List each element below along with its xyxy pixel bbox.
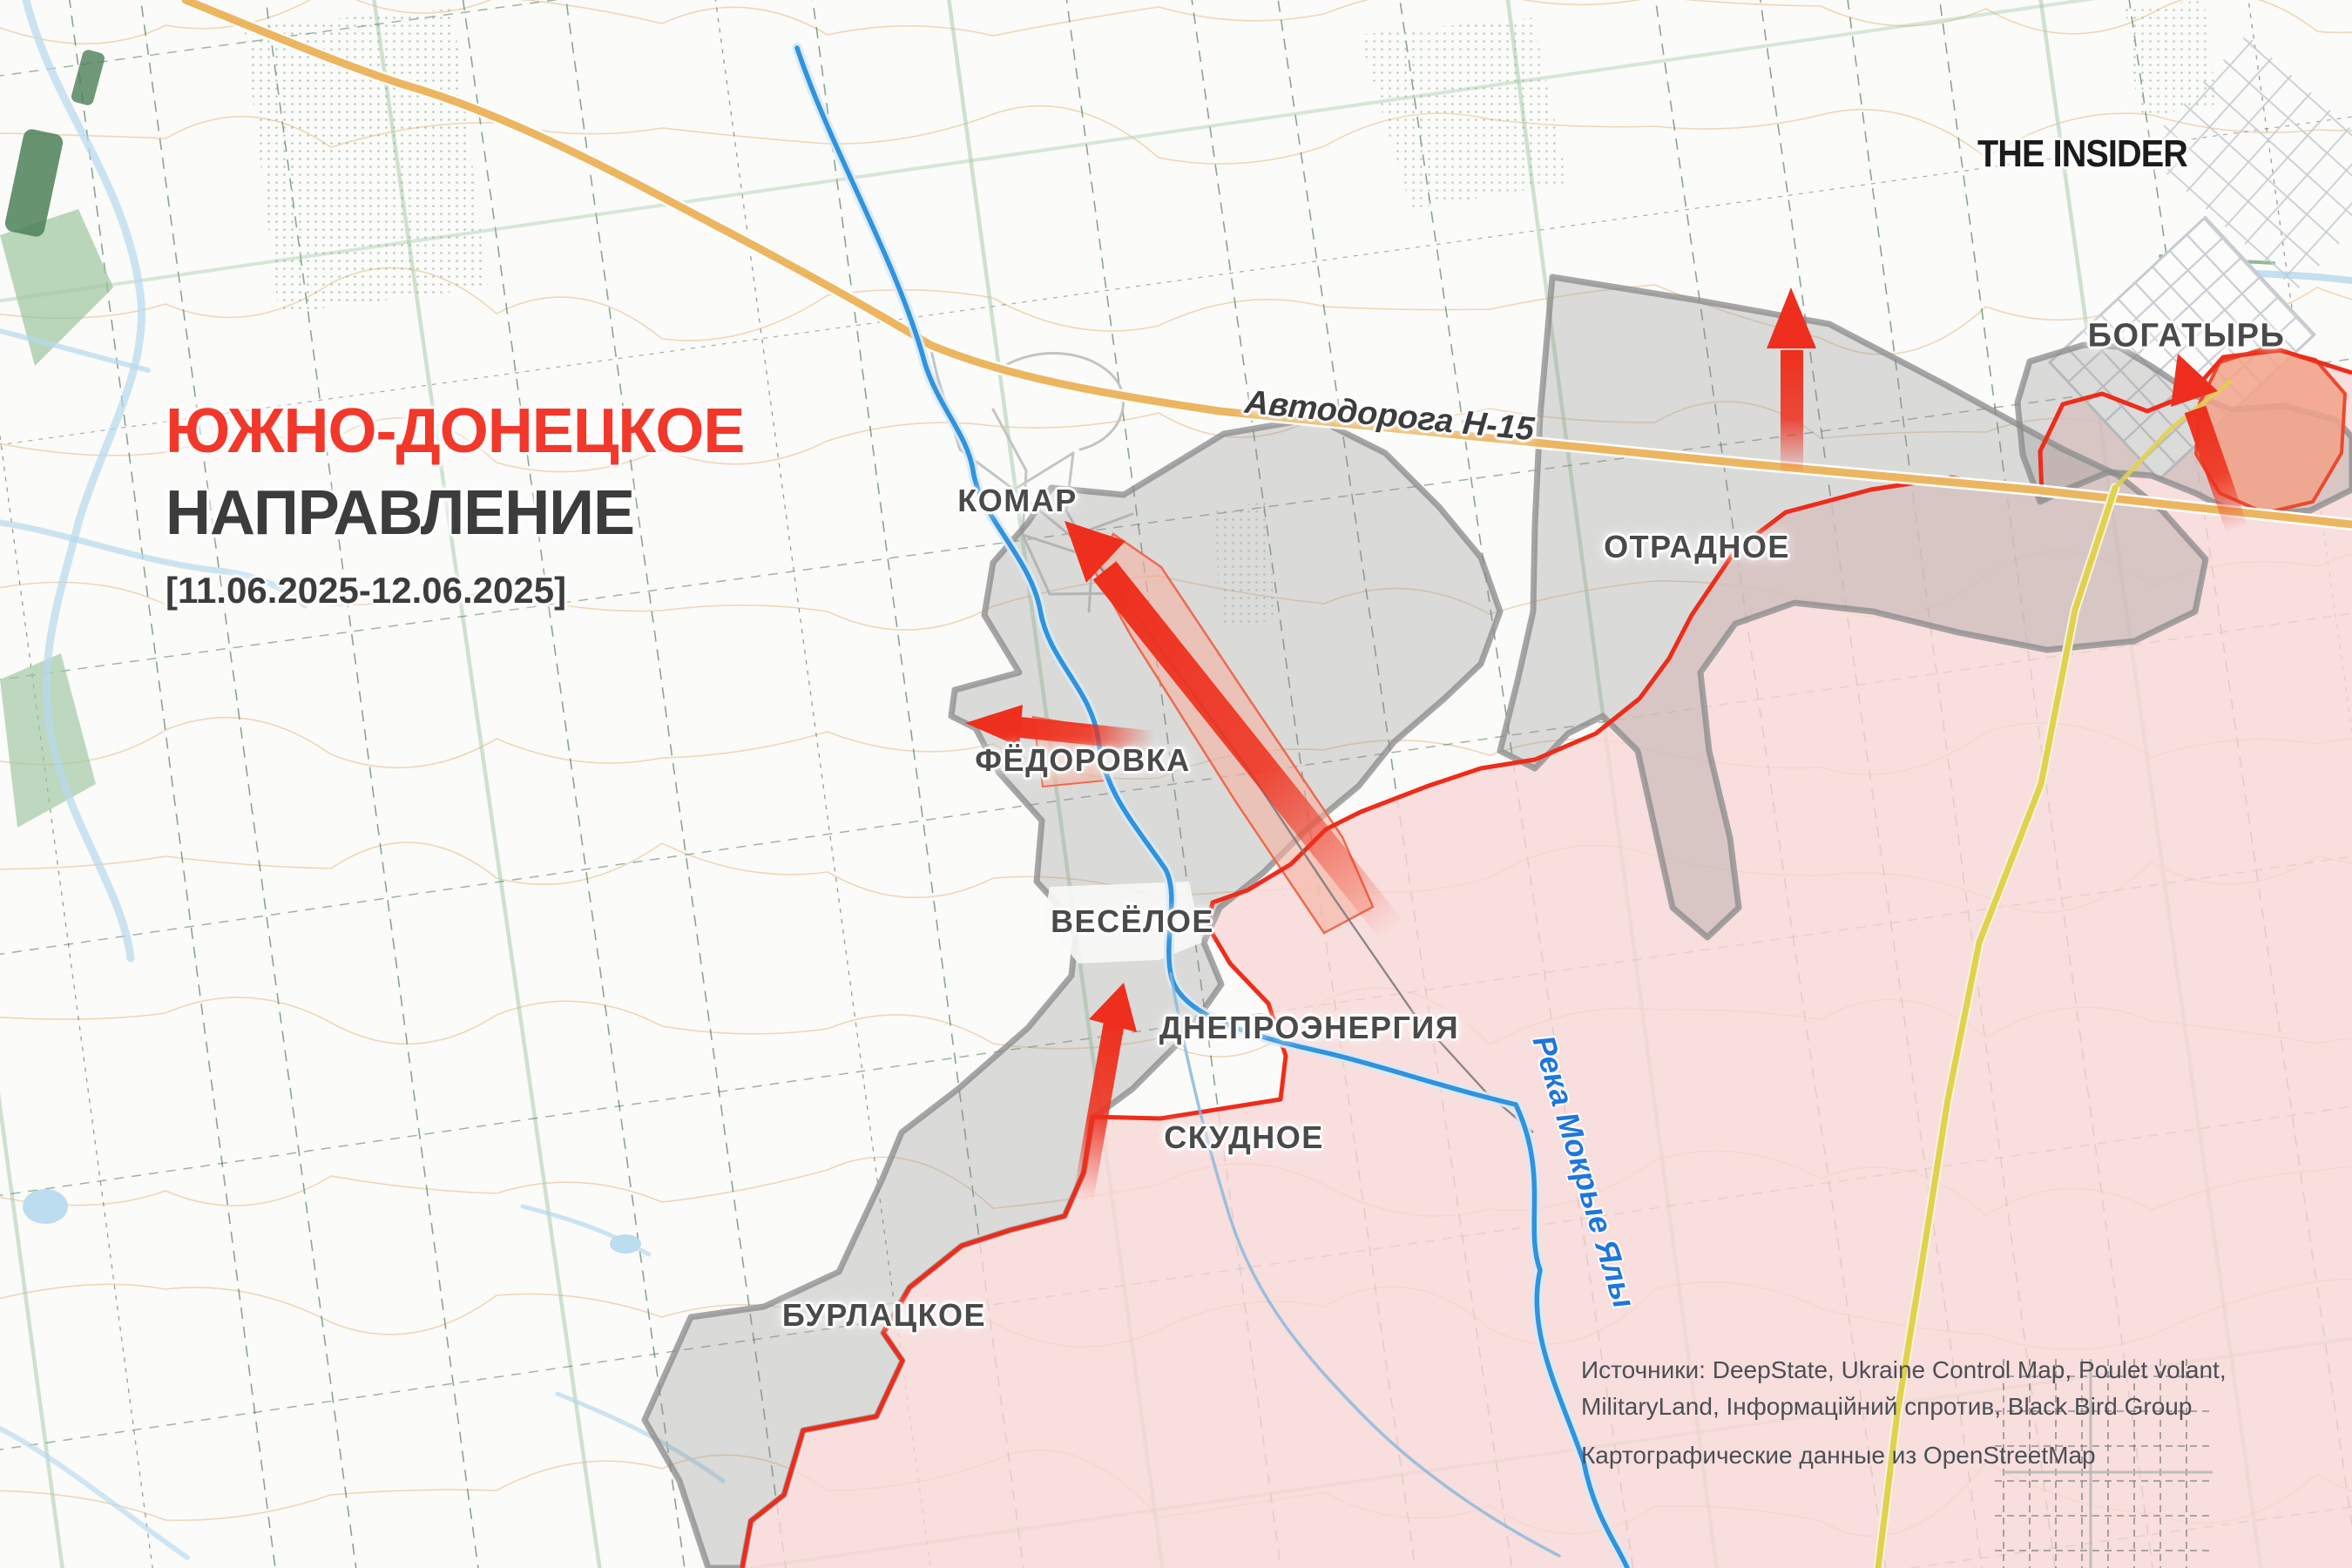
the-insider-logo: THE INSIDER [1977, 132, 2187, 176]
town-label-otradnoye: ОТРАДНОЕ [1604, 529, 1790, 565]
town-label-skudnoye: СКУДНОЕ [1164, 1119, 1324, 1156]
page-title: ЮЖНО-ДОНЕЦКОЕ [166, 390, 744, 472]
map-svg [0, 0, 2352, 1568]
sources-line-2: MilitaryLand, Інформаційний спротив, Bla… [1581, 1389, 2227, 1425]
town-label-dneproenergia: ДНЕПРОЭНЕРГИЯ [1159, 1010, 1459, 1046]
date-range: [11.06.2025-12.06.2025] [166, 570, 744, 612]
town-label-fedorovka: ФЁДОРОВКА [975, 742, 1190, 779]
town-label-komar: КОМАР [957, 483, 1077, 519]
sources-line-3: Картографические данные из OpenStreetMap [1581, 1437, 2227, 1474]
sources-attribution: Источники: DeepState, Ukraine Control Ma… [1581, 1352, 2227, 1474]
map-canvas: ЮЖНО-ДОНЕЦКОЕ НАПРАВЛЕНИЕ [11.06.2025-12… [0, 0, 2352, 1568]
title-block: ЮЖНО-ДОНЕЦКОЕ НАПРАВЛЕНИЕ [11.06.2025-12… [166, 390, 744, 612]
page-subtitle: НАПРАВЛЕНИЕ [166, 472, 744, 554]
arrow-fedorovka [1012, 727, 1154, 741]
town-label-vesyoloye: ВЕСЁЛОЕ [1051, 903, 1214, 940]
town-label-burlatskoye: БУРЛАЦКОЕ [782, 1297, 986, 1334]
town-label-bogatyr: БОГАТЫРЬ [2088, 318, 2286, 355]
sources-line-1: Источники: DeepState, Ukraine Control Ma… [1581, 1352, 2227, 1389]
